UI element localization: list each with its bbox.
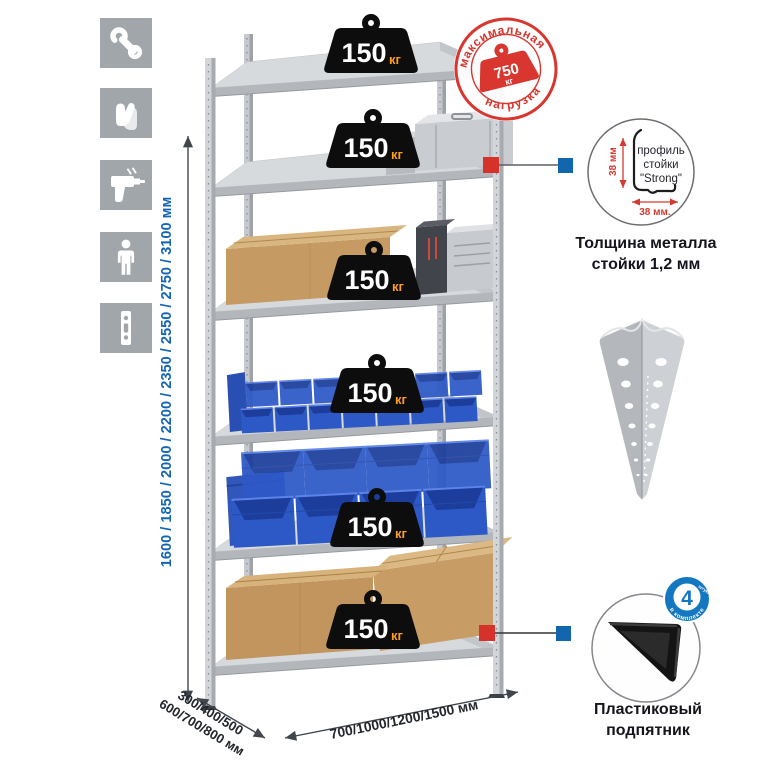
weight-badge-shelf-6: 150 кг	[319, 590, 427, 653]
svg-text:"Strong": "Strong"	[640, 173, 682, 185]
svg-text:кг: кг	[395, 526, 408, 541]
svg-text:кг: кг	[391, 628, 404, 643]
svg-text:профиль: профиль	[637, 145, 685, 157]
svg-text:38 мм: 38 мм	[608, 147, 619, 176]
svg-text:38 мм.: 38 мм.	[639, 207, 671, 218]
svg-text:стойки: стойки	[643, 159, 678, 171]
weight-badge-shelf-3: 150 кг	[320, 241, 428, 304]
max-load-stamp: максимальная нагрузка 750 кг	[451, 14, 561, 124]
weight-badge-shelf-2: 150 кг	[319, 109, 427, 172]
svg-text:кг: кг	[392, 279, 405, 294]
profile-detail-circle: 38 мм 38 мм. профиль стойки "Strong"	[585, 116, 697, 228]
height-dimension-label: 1600 / 1850 / 2000 / 2200 / 2350 / 2550 …	[159, 162, 179, 602]
gloves-icon	[100, 88, 152, 138]
svg-text:150: 150	[341, 38, 386, 68]
drill-icon	[100, 160, 152, 210]
foot-caption: Пластиковый подпятник	[572, 700, 724, 742]
weight-badge-shelf-5: 150 кг	[323, 488, 431, 551]
svg-text:150: 150	[344, 265, 389, 295]
svg-text:кг: кг	[389, 52, 402, 67]
wrench-icon	[100, 18, 152, 68]
qty-badge: 4 штуки в комплекте	[662, 574, 712, 624]
product-infographic: 150 кг 150 кг 150 кг 150 кг 150 кг 150 к…	[0, 0, 765, 765]
rail-icon	[100, 303, 152, 353]
svg-text:150: 150	[347, 512, 392, 542]
weight-badge-shelf-4: 150 кг	[323, 354, 431, 417]
svg-text:кг: кг	[391, 147, 404, 162]
angle-post-image	[585, 298, 700, 516]
weight-badge-shelf-1: 150 кг	[317, 14, 425, 77]
profile-caption: Толщина металла стойки 1,2 мм	[570, 234, 722, 276]
svg-text:150: 150	[347, 378, 392, 408]
svg-text:150: 150	[343, 133, 388, 163]
svg-text:кг: кг	[395, 392, 408, 407]
svg-text:150: 150	[343, 614, 388, 644]
svg-text:4: 4	[681, 587, 693, 610]
person-icon	[100, 232, 152, 282]
